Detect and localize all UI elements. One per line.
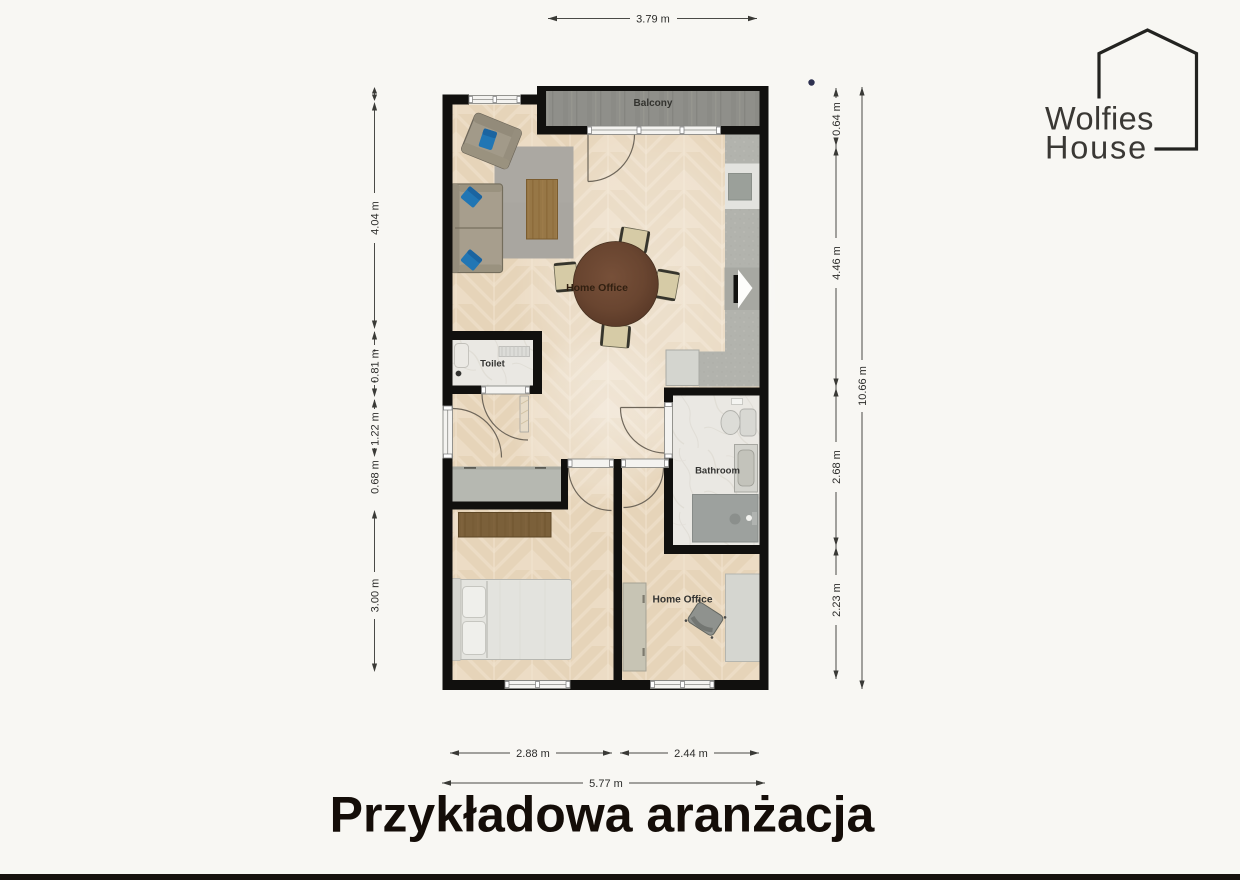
svg-text:10.66 m: 10.66 m (857, 366, 869, 406)
svg-text:2.68 m: 2.68 m (831, 450, 843, 484)
svg-text:2.23 m: 2.23 m (831, 583, 843, 617)
svg-text:3.00 m: 3.00 m (370, 579, 382, 613)
svg-text:4.04 m: 4.04 m (370, 201, 382, 235)
svg-text:0.68 m: 0.68 m (370, 460, 382, 494)
svg-text:4.46 m: 4.46 m (831, 246, 843, 280)
svg-text:0.64 m: 0.64 m (831, 102, 843, 136)
svg-text:Przykładowa aranżacja: Przykładowa aranżacja (330, 787, 876, 843)
svg-text:3.79 m: 3.79 m (636, 14, 670, 26)
svg-text:0.81 m: 0.81 m (370, 349, 382, 383)
svg-text:2.44 m: 2.44 m (674, 748, 708, 760)
svg-text:2.88 m: 2.88 m (516, 748, 550, 760)
svg-text:Home Office: Home Office (566, 282, 628, 294)
svg-text:1.22 m: 1.22 m (370, 412, 382, 446)
svg-text:Bathroom: Bathroom (695, 466, 740, 477)
svg-text:Balcony: Balcony (634, 98, 673, 109)
svg-text:Home Office: Home Office (652, 595, 712, 606)
svg-text:House: House (1045, 130, 1148, 166)
svg-text:Toilet: Toilet (480, 359, 505, 370)
